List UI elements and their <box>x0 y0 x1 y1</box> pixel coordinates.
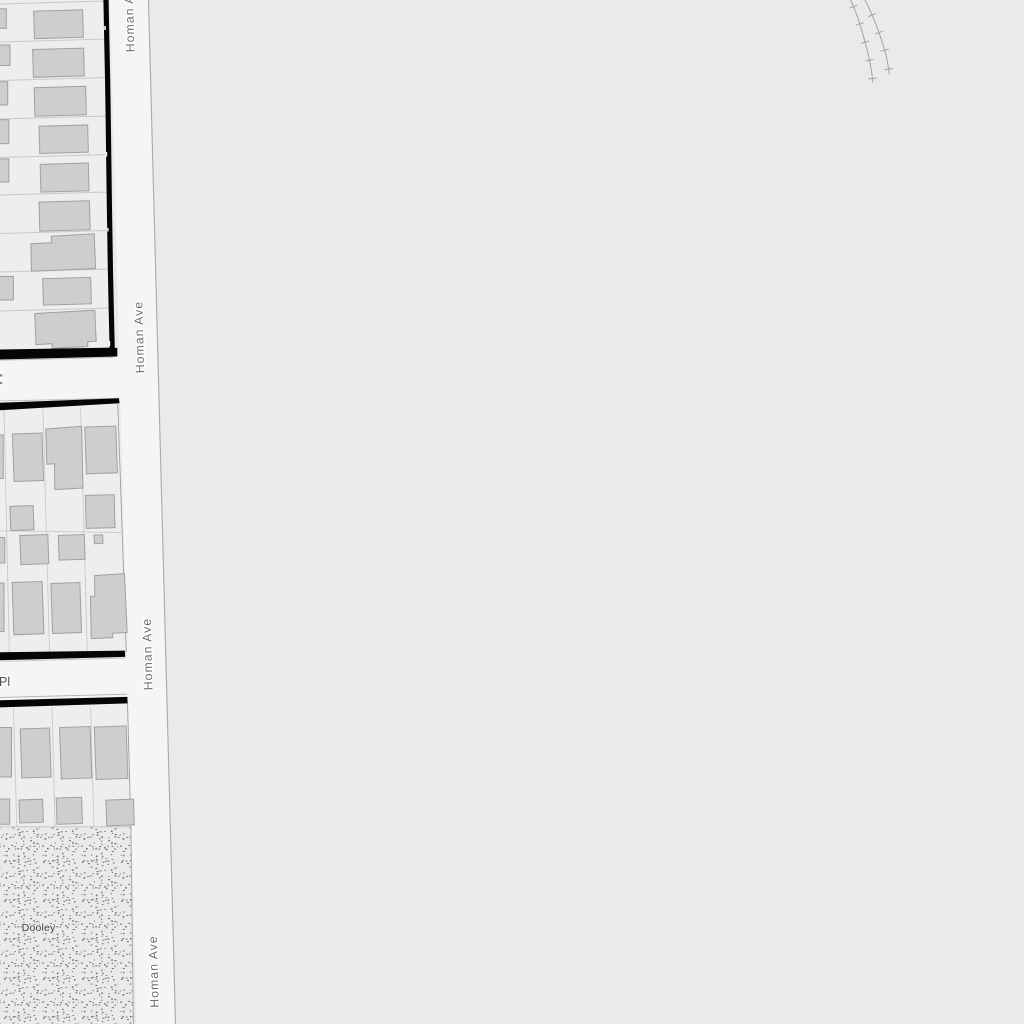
svg-text:Homan Ave: Homan Ave <box>140 618 156 691</box>
svg-text:Homan Ave: Homan Ave <box>122 0 138 52</box>
svg-text:Pl: Pl <box>0 675 10 689</box>
svg-text:Dooley: Dooley <box>22 923 56 934</box>
svg-text:Homan Ave: Homan Ave <box>131 301 147 374</box>
svg-text:Homan Ave: Homan Ave <box>146 935 162 1008</box>
